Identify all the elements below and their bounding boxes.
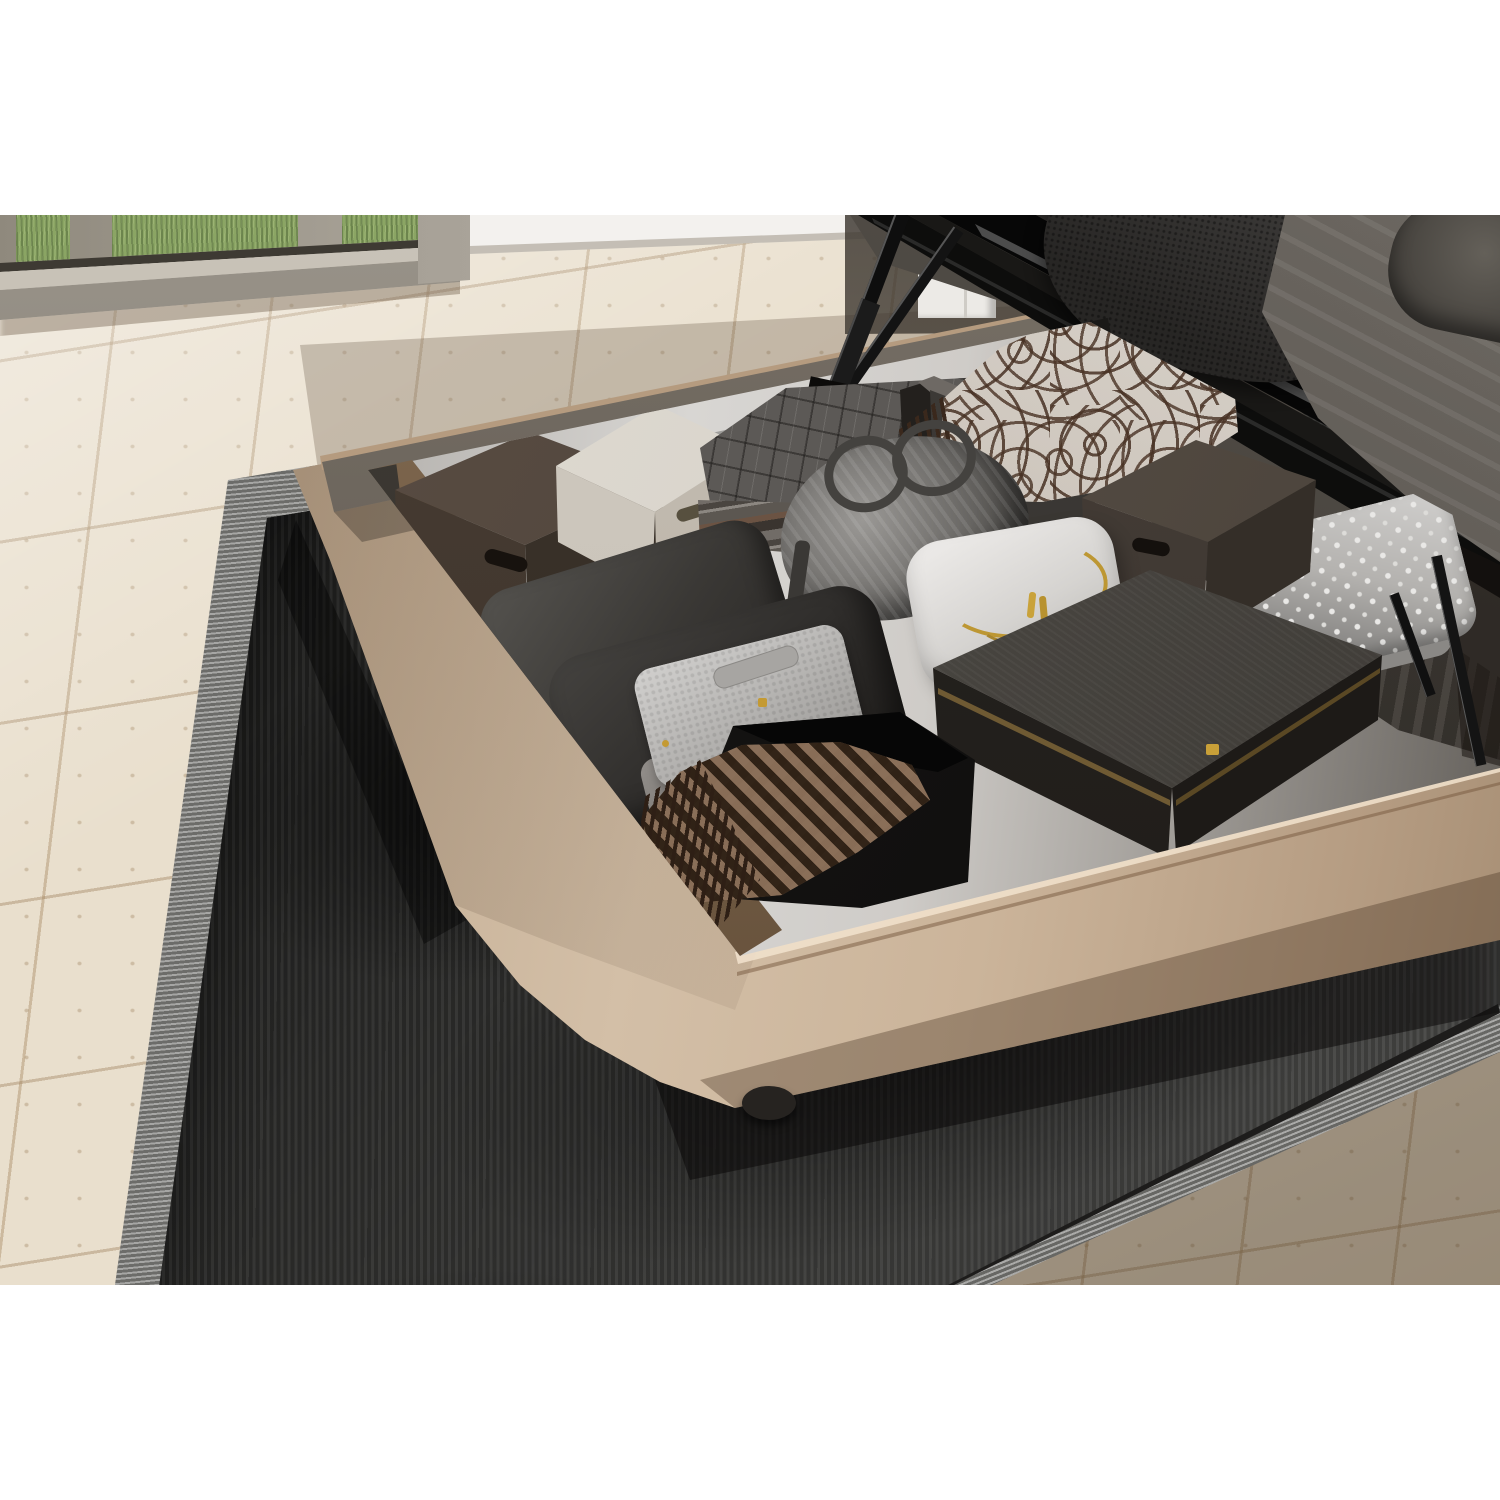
product-image-canvas [0,0,1500,1500]
suitcase-gold-clasp [1206,744,1219,755]
gray-case-gold-zip [662,740,669,747]
letterbox-bottom [0,1285,1500,1500]
bed-leg [742,1086,796,1120]
letterbox-top [0,0,1500,215]
gray-case-gold-buckle [758,698,767,707]
